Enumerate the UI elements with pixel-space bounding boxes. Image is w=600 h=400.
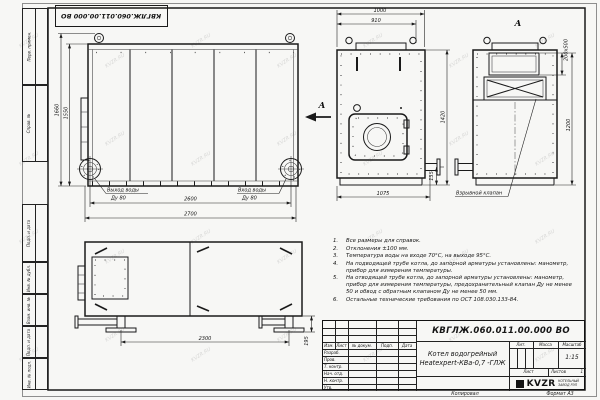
col-list: Лист xyxy=(335,342,348,349)
scale-header: Масштаб xyxy=(558,341,586,348)
scale-value: 1:15 xyxy=(558,348,586,368)
margin-cell-podp-data-1: Подп. и дата xyxy=(22,204,48,262)
inlet-dn-label: Ду 80 xyxy=(241,196,257,202)
dim-front-bottom: 1075 xyxy=(377,191,390,197)
margin-cell-vzam-inv: Взам. инв. № xyxy=(22,294,48,326)
divider-line xyxy=(323,328,416,329)
row-nach-otd: Нач. отд. xyxy=(324,370,347,377)
margin-label: Взам. инв. № xyxy=(27,296,32,323)
technical-notes: 1.Все размеры для справок. 2.Отклонения … xyxy=(331,238,573,304)
note-item: 1.Все размеры для справок. xyxy=(331,238,573,245)
margin-cell-inv-dubl: Инв. № дубл. xyxy=(22,262,48,294)
note-item: 2.Отклонения ±100 мм. xyxy=(331,246,573,253)
note-item: 5.На отводящей трубе котла, до запорной … xyxy=(331,275,573,296)
explosion-valve-label: Взрывной клапан xyxy=(456,191,503,197)
note-number: 6. xyxy=(331,297,346,304)
sheet-label: Лист xyxy=(509,368,548,376)
doc-number-stamp: КВГЛЖ.060.011.00.000 ВО xyxy=(55,5,168,27)
dim-side-height-outer: 1660 xyxy=(55,104,61,117)
dim-side-height-inner: 1550 xyxy=(64,107,70,120)
inlet-label: Вход воды xyxy=(238,188,266,194)
title-block: Изм. Лист № докум. Подп. Дата Разраб. Пр… xyxy=(322,320,585,390)
product-name: Котел водогрейный Heatexpert-КВа-0,7 -ГЛ… xyxy=(416,341,509,376)
margin-label: Инв. № дубл. xyxy=(27,264,32,291)
divider-line xyxy=(517,348,518,368)
note-text: Отклонения ±100 мм. xyxy=(346,246,573,253)
col-izm: Изм. xyxy=(323,342,335,349)
note-item: 6.Остальные технические требования по ОС… xyxy=(331,297,573,304)
sheets-value: 1 xyxy=(580,368,583,376)
row-prov: Пров. xyxy=(324,356,347,363)
dim-front-foot: 135 xyxy=(429,171,435,181)
dim-side-width-outer: 2700 xyxy=(184,212,197,218)
margin-label: Перв. примен. xyxy=(27,31,32,61)
dim-front-height: 1420 xyxy=(441,111,447,124)
format-label: Формат А3 xyxy=(530,392,590,397)
product-name-line1: Котел водогрейный xyxy=(428,350,497,358)
margin-cell-podp-data-2: Подп. и дата xyxy=(22,326,48,358)
note-number: 3. xyxy=(331,253,346,260)
row-n-kontr: Н. контр. xyxy=(324,377,347,384)
dim-side-width-inner: 2600 xyxy=(184,197,197,203)
margin-label: Справ. № xyxy=(27,114,32,133)
row-utv: Утв. xyxy=(324,384,347,391)
dim-plan-foot: 195 xyxy=(304,336,310,346)
col-date: Дата xyxy=(398,342,416,349)
mass-header: Масса xyxy=(533,341,558,348)
note-text: На подводящей трубе котла, до запорной а… xyxy=(346,261,573,275)
sheets-row: Листов 1 xyxy=(548,368,586,376)
note-item: 4.На подводящей трубе котла, до запорной… xyxy=(331,261,573,275)
front-view: 1000 910 1420 1075 135 xyxy=(337,8,450,201)
view-a: А 200х500 1200 xyxy=(455,19,576,197)
margin-cell-inv-podl: Инв. № подл. xyxy=(22,358,48,390)
sheets-label: Листов xyxy=(551,368,566,376)
note-number: 5. xyxy=(331,275,346,296)
row-t-kontr: Т. контр. xyxy=(324,363,347,370)
note-item: 3.Температура воды на входе 70°С, на вых… xyxy=(331,253,573,260)
note-number: 2. xyxy=(331,246,346,253)
margin-label: Подп. и дата xyxy=(27,219,32,246)
company-logo-cell: KVZR КОТЕЛЬНЫЙ ЗАВОД РЭП xyxy=(509,376,586,391)
note-text: Остальные технические требования по ОСТ … xyxy=(346,297,573,304)
dim-viewa-height: 1200 xyxy=(566,119,572,132)
lit-header: Лит. xyxy=(509,341,533,348)
margin-label: Инв. № подл. xyxy=(27,360,32,388)
view-a-label: А xyxy=(514,19,522,29)
note-text: Температура воды на входе 70°С, на выход… xyxy=(346,253,573,260)
doc-number-stamp-text: КВГЛЖ.060.011.00.000 ВО xyxy=(61,12,161,20)
divider-line xyxy=(525,348,526,368)
note-text: На отводящей трубе котла, до запорной ар… xyxy=(346,275,573,296)
kvzr-logo-icon xyxy=(516,380,524,388)
drawing-sheet: KVZR.RUKVZR.RUKVZR.RUKVZR.RUKVZR.RUKVZR.… xyxy=(0,0,600,400)
kvzr-logo-subtitle: КОТЕЛЬНЫЙ ЗАВОД РЭП xyxy=(558,380,579,388)
kvzr-logo-text: KVZR xyxy=(527,379,556,389)
logo-sub-line2: ЗАВОД РЭП xyxy=(558,384,579,388)
margin-cell-perv-primen: Перв. примен. xyxy=(22,8,48,85)
product-name-line2: Heatexpert-КВа-0,7 -ГЛЖ xyxy=(420,359,506,367)
side-view: 1660 1550 2600 2700 Выход воды Ду 80 Вхо… xyxy=(55,34,332,223)
outlet-dn-label: Ду 80 xyxy=(110,196,126,202)
copied-label: Копировал xyxy=(405,392,525,397)
section-label: А xyxy=(318,101,326,111)
dim-viewa-opening: 200х500 xyxy=(564,39,570,61)
outlet-label: Выход воды xyxy=(107,188,139,194)
note-text: Все размеры для справок. xyxy=(346,238,573,245)
dim-front-top-outer: 1000 xyxy=(374,8,387,14)
dim-front-top-inner: 910 xyxy=(371,18,381,24)
note-number: 1. xyxy=(331,238,346,245)
col-sign: Подп. xyxy=(376,342,398,349)
margin-cell-sprav-no: Справ. № xyxy=(22,85,48,162)
divider-line xyxy=(323,335,416,336)
margin-label: Подп. и дата xyxy=(27,328,32,355)
title-block-doc-number: КВГЛЖ.060.011.00.000 ВО xyxy=(416,321,586,341)
row-razrab: Разраб. xyxy=(324,349,347,356)
plan-view: 2300 195 xyxy=(75,242,315,346)
note-number: 4. xyxy=(331,261,346,275)
dim-plan-length: 2300 xyxy=(199,336,212,342)
col-doc: № докум. xyxy=(348,342,376,349)
